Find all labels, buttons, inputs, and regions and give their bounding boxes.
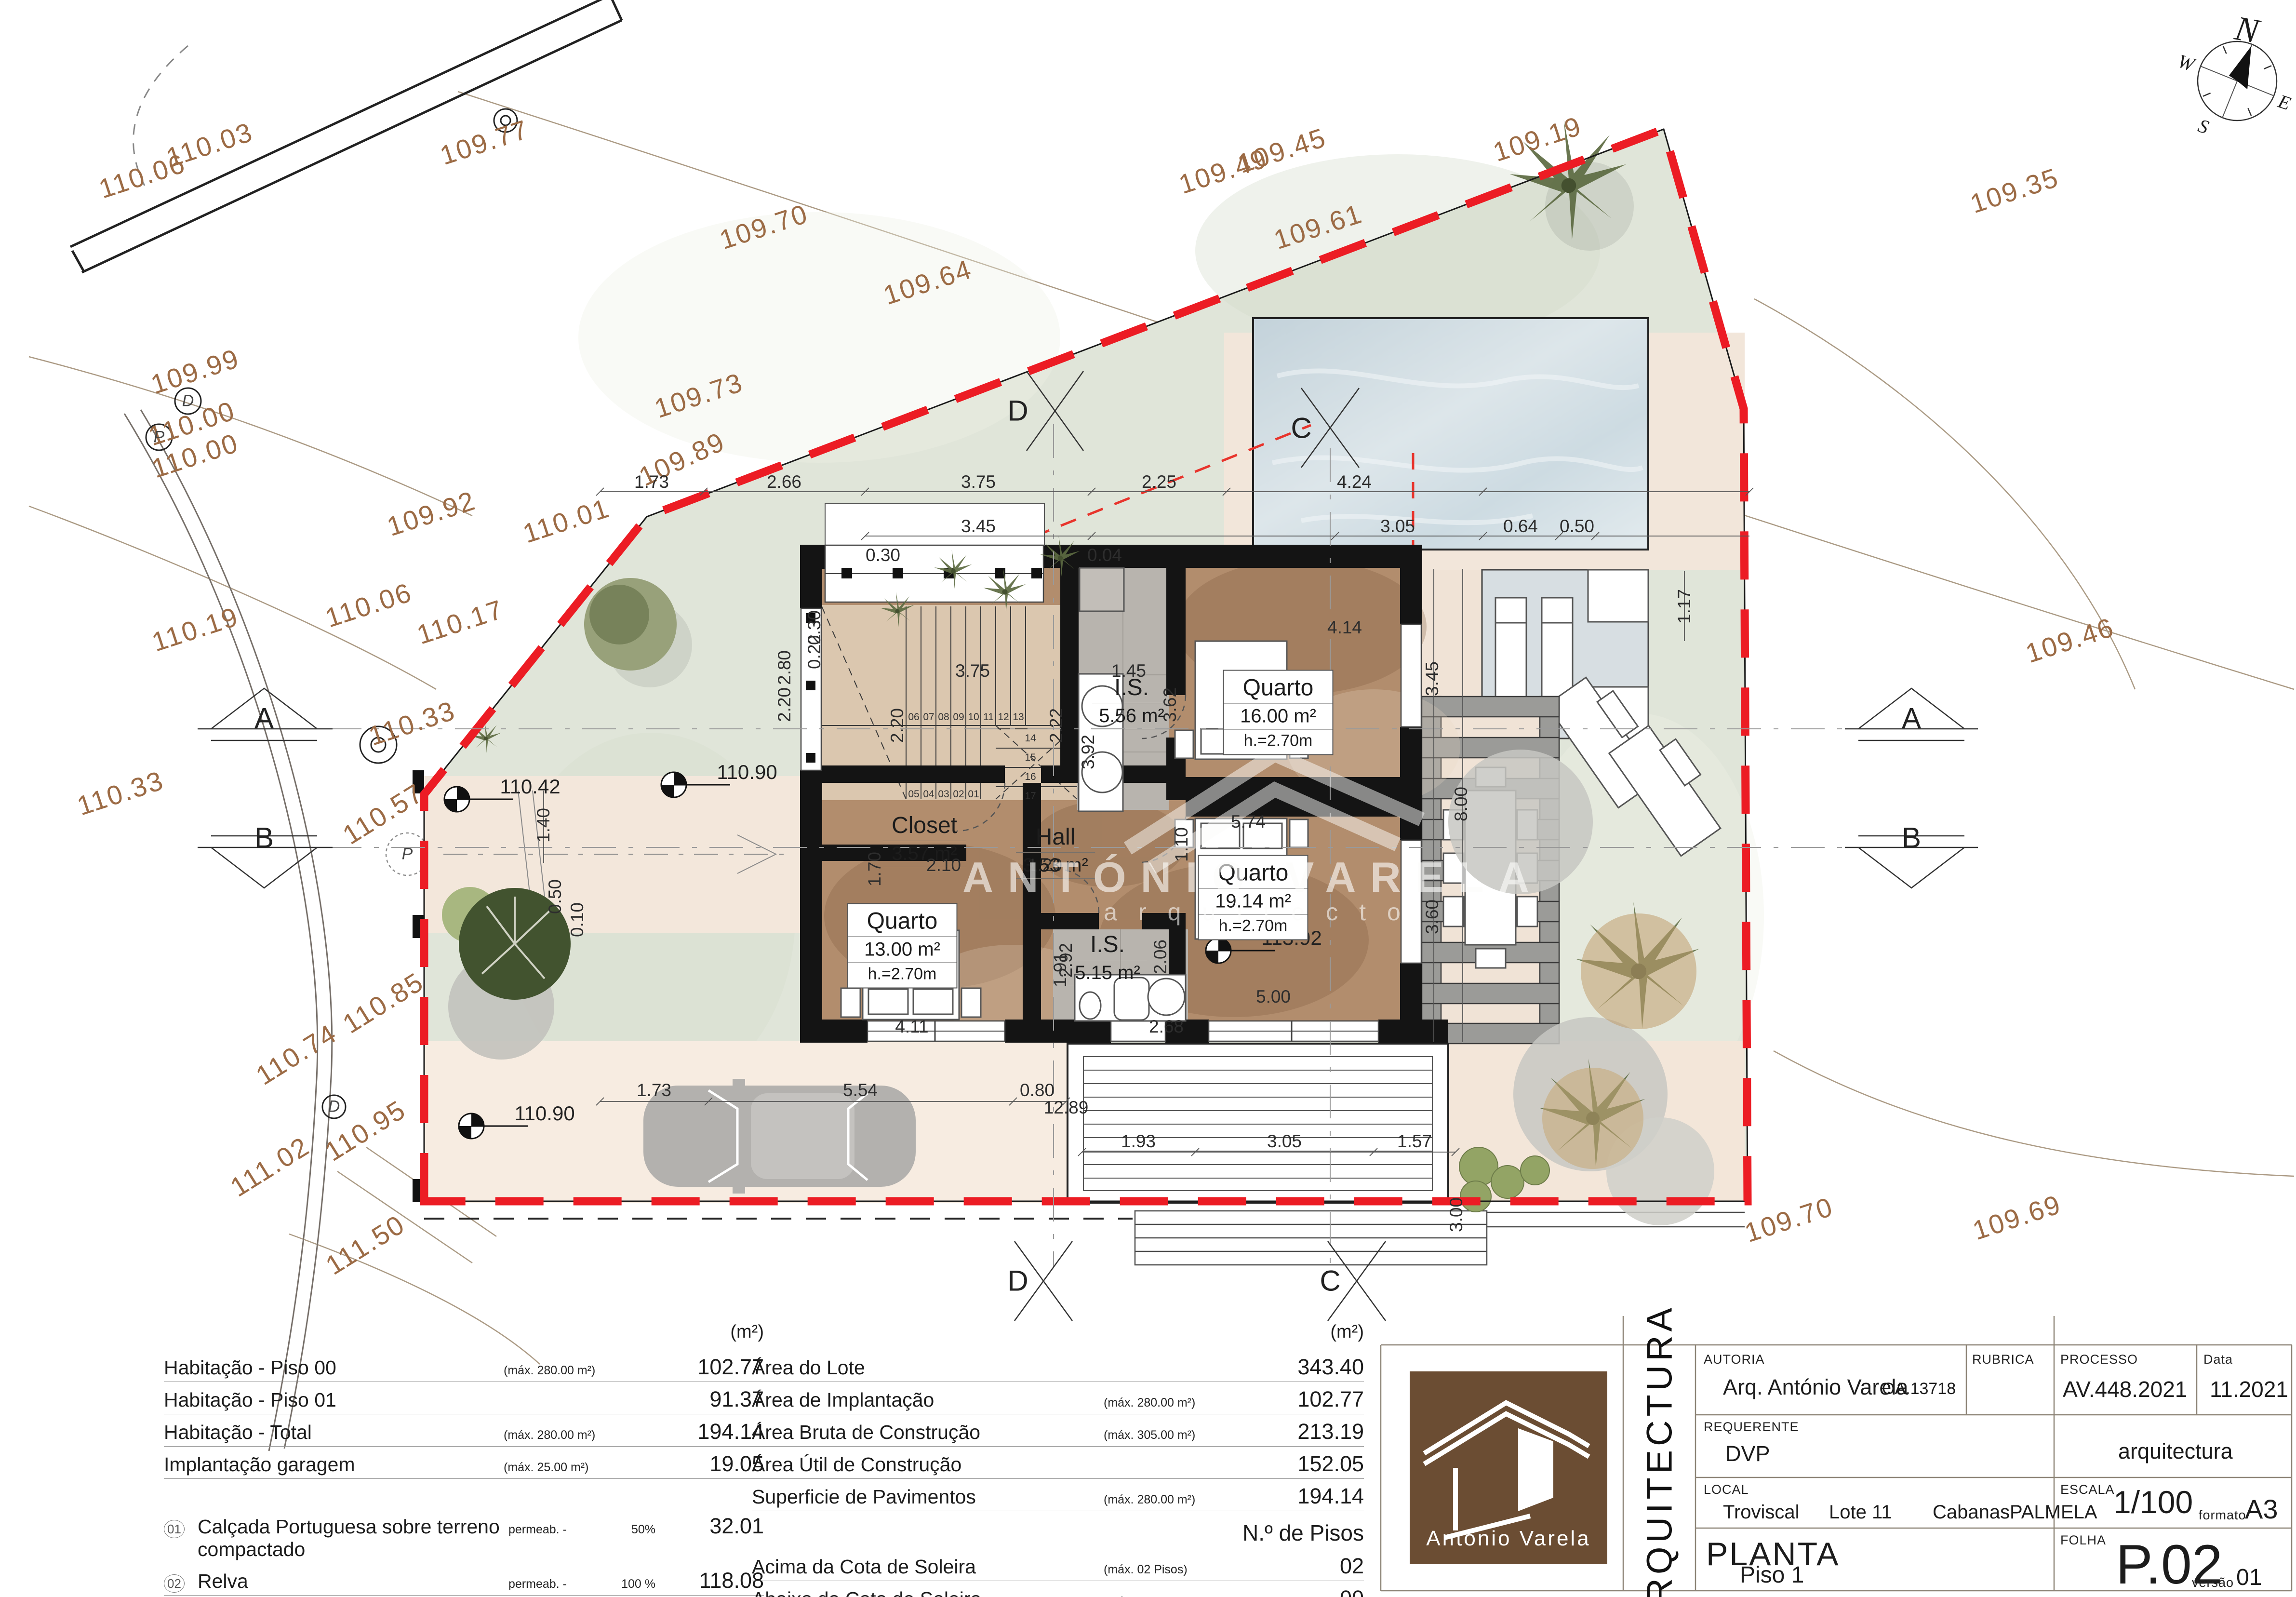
garage-roof — [1068, 1044, 1448, 1203]
dimension-label: 5.00 — [1256, 987, 1291, 1007]
table-row: Acima da Cota de Soleira(máx. 02 Pisos)0… — [752, 1549, 1364, 1581]
dimension-label: 1.93 — [1121, 1131, 1156, 1152]
stair-number: 10 — [968, 711, 979, 723]
dimension-label: 4.24 — [1337, 472, 1372, 492]
dimension-label: 0.04 — [1087, 545, 1122, 565]
table-row: Habitação - Piso 00(máx. 280.00 m²)102.7… — [164, 1350, 764, 1382]
stair-number: 08 — [938, 711, 949, 723]
dimension-label: 2.22 — [1046, 708, 1067, 743]
section-marker-label: A — [1902, 702, 1921, 735]
dimension-label: 1.17 — [1674, 589, 1695, 624]
formato-label: formato — [2199, 1508, 2246, 1523]
table-row: 02Relvapermeab. -100 %118.08 — [164, 1563, 764, 1596]
utility-letter: P — [402, 845, 413, 864]
room-label: I.S.5.56 m² — [1092, 671, 1171, 729]
road-top — [70, 0, 622, 272]
autoria-value: Arq. António Varela — [1723, 1375, 1908, 1400]
dimension-label: 4.11 — [895, 1017, 928, 1037]
sheet-subtitle: Piso 1 — [1740, 1562, 1804, 1588]
stair-number: 14 — [1025, 733, 1036, 744]
data-value: 11.2021 — [2210, 1376, 2288, 1402]
road-left — [124, 410, 332, 1451]
section-marker-label: C — [1320, 1264, 1340, 1298]
logo-name: Antonio Varela — [1410, 1527, 1607, 1551]
stair-number: 06 — [908, 711, 919, 723]
drawing-sheet: 110.03110.06109.77109.70109.64109.73109.… — [0, 0, 2296, 1597]
dimension-label: 5.54 — [843, 1080, 878, 1100]
logo-house-icon — [1424, 1403, 1589, 1538]
data-label: Data — [2203, 1352, 2233, 1367]
table-row: Área do Lote343.40 — [752, 1350, 1364, 1382]
exterior-steps — [424, 1211, 1745, 1265]
room-label: Quarto16.00 m²h.=2.70m — [1223, 670, 1334, 755]
escala-label: ESCALA — [2060, 1482, 2115, 1497]
stair-number: 16 — [1025, 771, 1036, 783]
watermark-subtitle: arquitecto — [1104, 898, 1422, 926]
room-label: Quarto13.00 m²h.=2.70m — [847, 903, 958, 989]
dimension-label: 3.05 — [1380, 516, 1415, 537]
dimension-label: 12.89 — [1044, 1098, 1089, 1118]
table-row: Habitação - Piso 0191.37 — [164, 1382, 764, 1414]
firm-logo: Antonio Varela — [1410, 1371, 1607, 1564]
dimension-label: 2.80 — [774, 650, 795, 685]
section-marker-label: A — [254, 702, 274, 735]
dimension-label: 2.66 — [767, 472, 801, 492]
spot-level-label: 110.42 — [500, 775, 560, 798]
requerente-label: REQUERENTE — [1704, 1420, 1799, 1435]
unit-header: (m²) — [1330, 1322, 1364, 1342]
room-label: I.S.5.15 m² — [1068, 927, 1147, 986]
stair-number: 15 — [1025, 752, 1036, 764]
stair-number: 17 — [1025, 791, 1036, 802]
folha-label: FOLHA — [2060, 1533, 2106, 1548]
table-row: Implantação garagem(máx. 25.00 m²)19.05 — [164, 1447, 764, 1479]
pool — [1253, 318, 1648, 550]
dimension-label: 2.25 — [1142, 472, 1176, 492]
areas-table-habitacao: (m²) Habitação - Piso 00(máx. 280.00 m²)… — [164, 1350, 764, 1597]
section-marker-label: B — [254, 821, 274, 855]
dimension-label: 3.75 — [961, 472, 996, 492]
local-label: LOCAL — [1704, 1482, 1749, 1497]
dimension-label: 0.22 — [804, 634, 825, 669]
dimension-label: 3.45 — [961, 516, 996, 537]
watermark-title: ANTÓNIO VARELA — [962, 853, 1543, 902]
local-item: Troviscal — [1723, 1502, 1800, 1523]
table-row: Área de Implantação(máx. 280.00 m²)102.7… — [752, 1382, 1364, 1414]
stair-number: 11 — [983, 711, 994, 723]
dimension-label: 1.73 — [634, 472, 669, 492]
spot-level-label: 110.90 — [514, 1102, 574, 1125]
escala-value: 1/100 — [2113, 1484, 2193, 1520]
dimension-label: 0.50 — [545, 879, 565, 914]
table-row: Habitação - Total(máx. 280.00 m²)194.14 — [164, 1414, 764, 1447]
autoria-oa: OA.13718 — [1882, 1380, 1956, 1398]
stair-number: 02 — [953, 789, 964, 800]
dimension-label: 0.30 — [866, 545, 900, 565]
formato-value: A3 — [2245, 1493, 2278, 1525]
areas-table-lote: (m²) Área do Lote343.40Área de Implantaç… — [752, 1350, 1364, 1597]
table-row: Abaixo da Cota de Soleira(máx. 00 Pisos)… — [752, 1581, 1364, 1597]
rubrica-label: RUBRICA — [1972, 1352, 2034, 1367]
dimension-label: 2.20 — [774, 687, 795, 722]
utility-letter: P — [154, 428, 165, 447]
dimension-label: 1.70 — [865, 852, 885, 886]
autoria-label: AUTORIA — [1704, 1352, 1765, 1367]
dimension-label: 2.68 — [1149, 1017, 1184, 1037]
stair-number: 09 — [953, 711, 964, 723]
local-item: Cabanas — [1933, 1502, 2010, 1523]
versao-label: versão — [2192, 1575, 2234, 1590]
table-row: Área Útil de Construção152.05 — [752, 1447, 1364, 1479]
dimension-label: 0.10 — [567, 902, 587, 937]
pisos-header: N.º de Pisos — [752, 1511, 1364, 1549]
unit-header: (m²) — [730, 1322, 764, 1342]
utility-letter: D — [182, 392, 194, 411]
dimension-label: 3.45 — [1422, 661, 1442, 696]
dimension-label: 3.00 — [1446, 1197, 1467, 1232]
stair-number: 13 — [1013, 711, 1024, 723]
utility-letter: D — [328, 1098, 340, 1116]
section-marker-label: D — [1007, 1264, 1028, 1298]
local-item: PALMELA — [2010, 1502, 2097, 1523]
dimension-label: 5.74 — [1231, 812, 1266, 832]
discipline-vertical-label: ARQUITECTURA — [1623, 1345, 1695, 1591]
stair-number: 04 — [923, 789, 934, 800]
dimension-label: 0.64 — [1503, 516, 1538, 537]
dimension-label: 3.05 — [1267, 1131, 1302, 1152]
table-row: 01Calçada Portuguesa sobre terreno compa… — [164, 1509, 764, 1563]
dimension-label: 2.06 — [1150, 939, 1171, 974]
section-marker-label: B — [1902, 821, 1921, 855]
local-item: Lote 11 — [1829, 1502, 1892, 1523]
processo-value: AV.448.2021 — [2063, 1376, 2187, 1402]
dimension-label: 1.73 — [637, 1080, 671, 1100]
dimension-label: 1.91 — [1050, 953, 1070, 987]
dimension-label: 0.50 — [1560, 516, 1594, 537]
dimension-label: 3.75 — [955, 661, 990, 681]
dimension-label: 3.92 — [1078, 735, 1098, 769]
table-row: Área Bruta de Construção(máx. 305.00 m²)… — [752, 1414, 1364, 1447]
requerente-value: DVP — [1725, 1441, 1770, 1466]
dimension-label: 1.57 — [1397, 1131, 1432, 1152]
dimension-label: 2.20 — [887, 708, 908, 743]
processo-label: PROCESSO — [2060, 1352, 2138, 1367]
section-marker-label: C — [1291, 412, 1311, 445]
dimension-label: 8.00 — [1451, 787, 1471, 821]
stair-number: 12 — [998, 711, 1009, 723]
spot-level-label: 110.90 — [717, 761, 777, 784]
table-row: Superficie de Pavimentos(máx. 280.00 m²)… — [752, 1479, 1364, 1511]
section-marker-label: D — [1007, 394, 1028, 428]
dimension-label: 3.60 — [1422, 899, 1442, 934]
stair-number: 05 — [908, 789, 919, 800]
stair-number: 07 — [923, 711, 934, 723]
stair-number: 01 — [968, 789, 979, 800]
dimension-label: 4.14 — [1327, 617, 1362, 638]
room-label: Closet3.57 m² — [883, 808, 966, 867]
stair-number: 03 — [938, 789, 949, 800]
dimension-label: 1.40 — [534, 808, 554, 843]
versao-value: 01 — [2236, 1564, 2262, 1591]
discipline-value: arquitectura — [2118, 1439, 2233, 1464]
